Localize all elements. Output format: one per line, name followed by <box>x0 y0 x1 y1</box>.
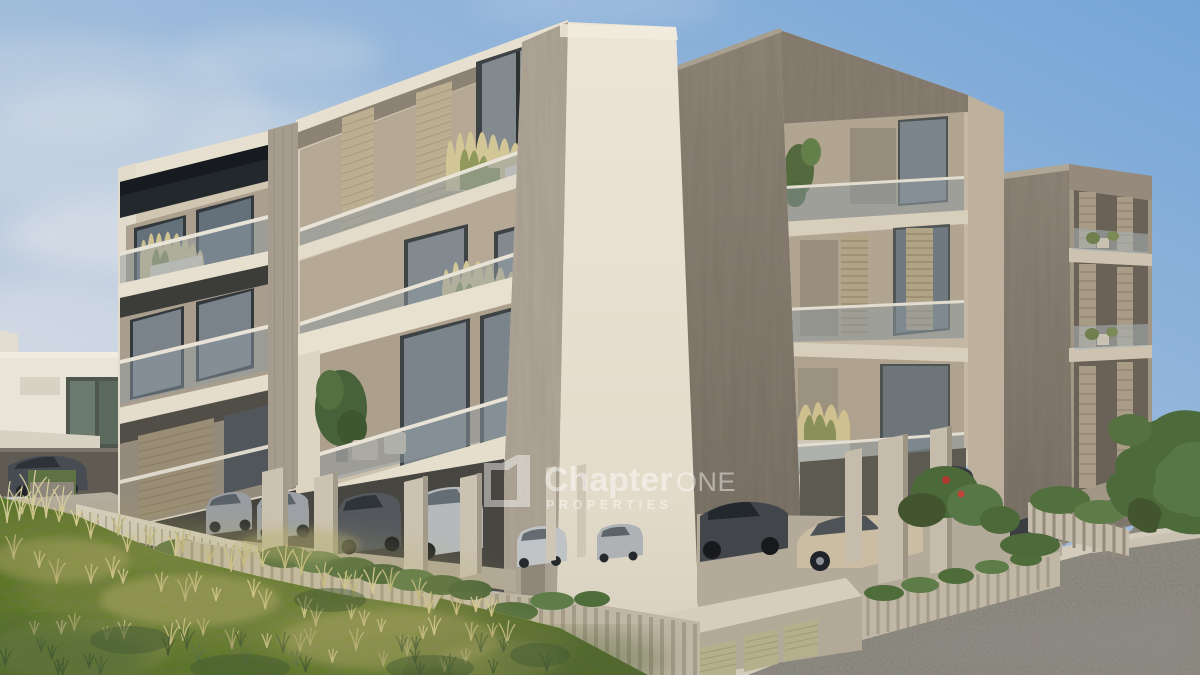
svg-text:PROPERTIES: PROPERTIES <box>546 498 673 512</box>
svg-text:ONE: ONE <box>676 467 736 497</box>
svg-text:Chapter: Chapter <box>544 461 672 499</box>
